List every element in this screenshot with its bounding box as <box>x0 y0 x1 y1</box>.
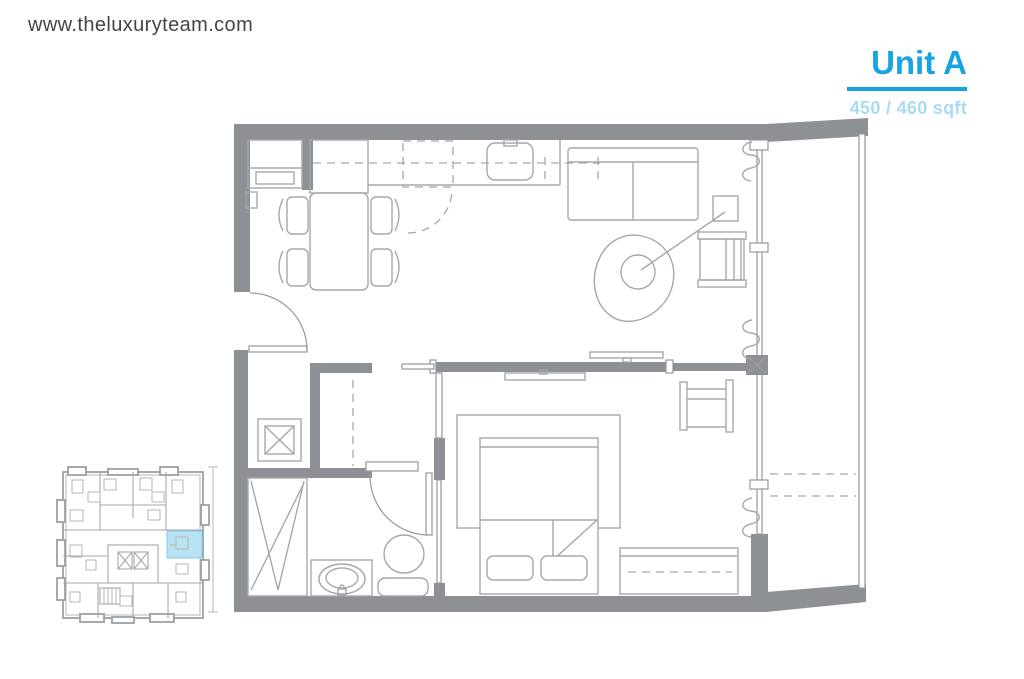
bed <box>480 438 598 594</box>
desk-chair <box>680 380 733 432</box>
sliding-door <box>402 364 434 369</box>
entry-door <box>249 293 307 352</box>
shower <box>248 478 307 596</box>
page: www.theluxuryteam.com Unit A 450 / 460 s… <box>0 0 1024 679</box>
entry-closet <box>248 140 302 188</box>
balcony <box>766 118 868 612</box>
armchair <box>698 232 746 287</box>
dresser <box>620 548 738 594</box>
toilet <box>378 535 428 596</box>
balcony-divider-dashed <box>770 474 856 496</box>
bathroom-door <box>366 462 432 535</box>
fridge-dashed <box>403 141 453 187</box>
middle-wall <box>430 360 746 373</box>
sofa <box>568 148 698 220</box>
pocket-door <box>434 373 445 597</box>
floor-plan-image <box>0 0 1024 679</box>
kitchen-counter <box>310 140 560 193</box>
living-tv <box>590 352 663 362</box>
highlighted-unit <box>167 531 202 558</box>
floor-lamp <box>594 196 738 321</box>
dimension-line <box>208 467 218 612</box>
upper-cabinets-dashed <box>313 157 600 185</box>
dining-table <box>310 193 368 290</box>
kitchen-sink <box>487 140 533 180</box>
key-plan <box>57 467 218 623</box>
vanity-sink <box>311 560 372 596</box>
cabinet-swing-dashed <box>408 189 452 233</box>
utility-box <box>258 419 301 461</box>
window-wall <box>746 140 768 534</box>
